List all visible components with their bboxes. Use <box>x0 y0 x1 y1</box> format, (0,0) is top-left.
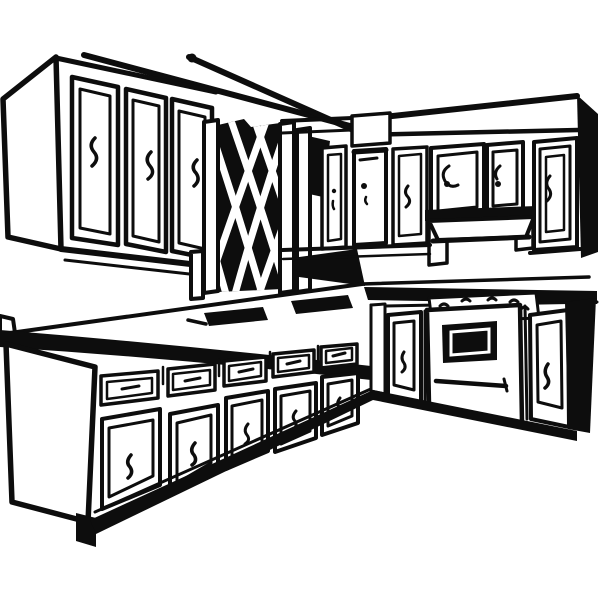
soffit-face-panel <box>352 113 390 146</box>
upper-door <box>354 149 386 245</box>
base-side-panel <box>6 344 95 522</box>
upper-left-doors <box>72 77 212 259</box>
corner-upper-doors <box>322 146 427 249</box>
door-knob <box>495 181 501 187</box>
kitchen-clipart-figure <box>0 0 600 600</box>
kitchen-line-drawing <box>0 0 600 600</box>
upper-door <box>322 146 346 249</box>
door-knob <box>332 189 336 193</box>
lattice-left-stile <box>204 120 218 293</box>
corner-stile <box>371 304 385 394</box>
lattice-right-stile <box>280 122 294 293</box>
stile-line <box>525 306 527 419</box>
lattice-left-post <box>191 251 203 299</box>
door-knob <box>361 183 367 189</box>
door-knob <box>444 181 450 187</box>
